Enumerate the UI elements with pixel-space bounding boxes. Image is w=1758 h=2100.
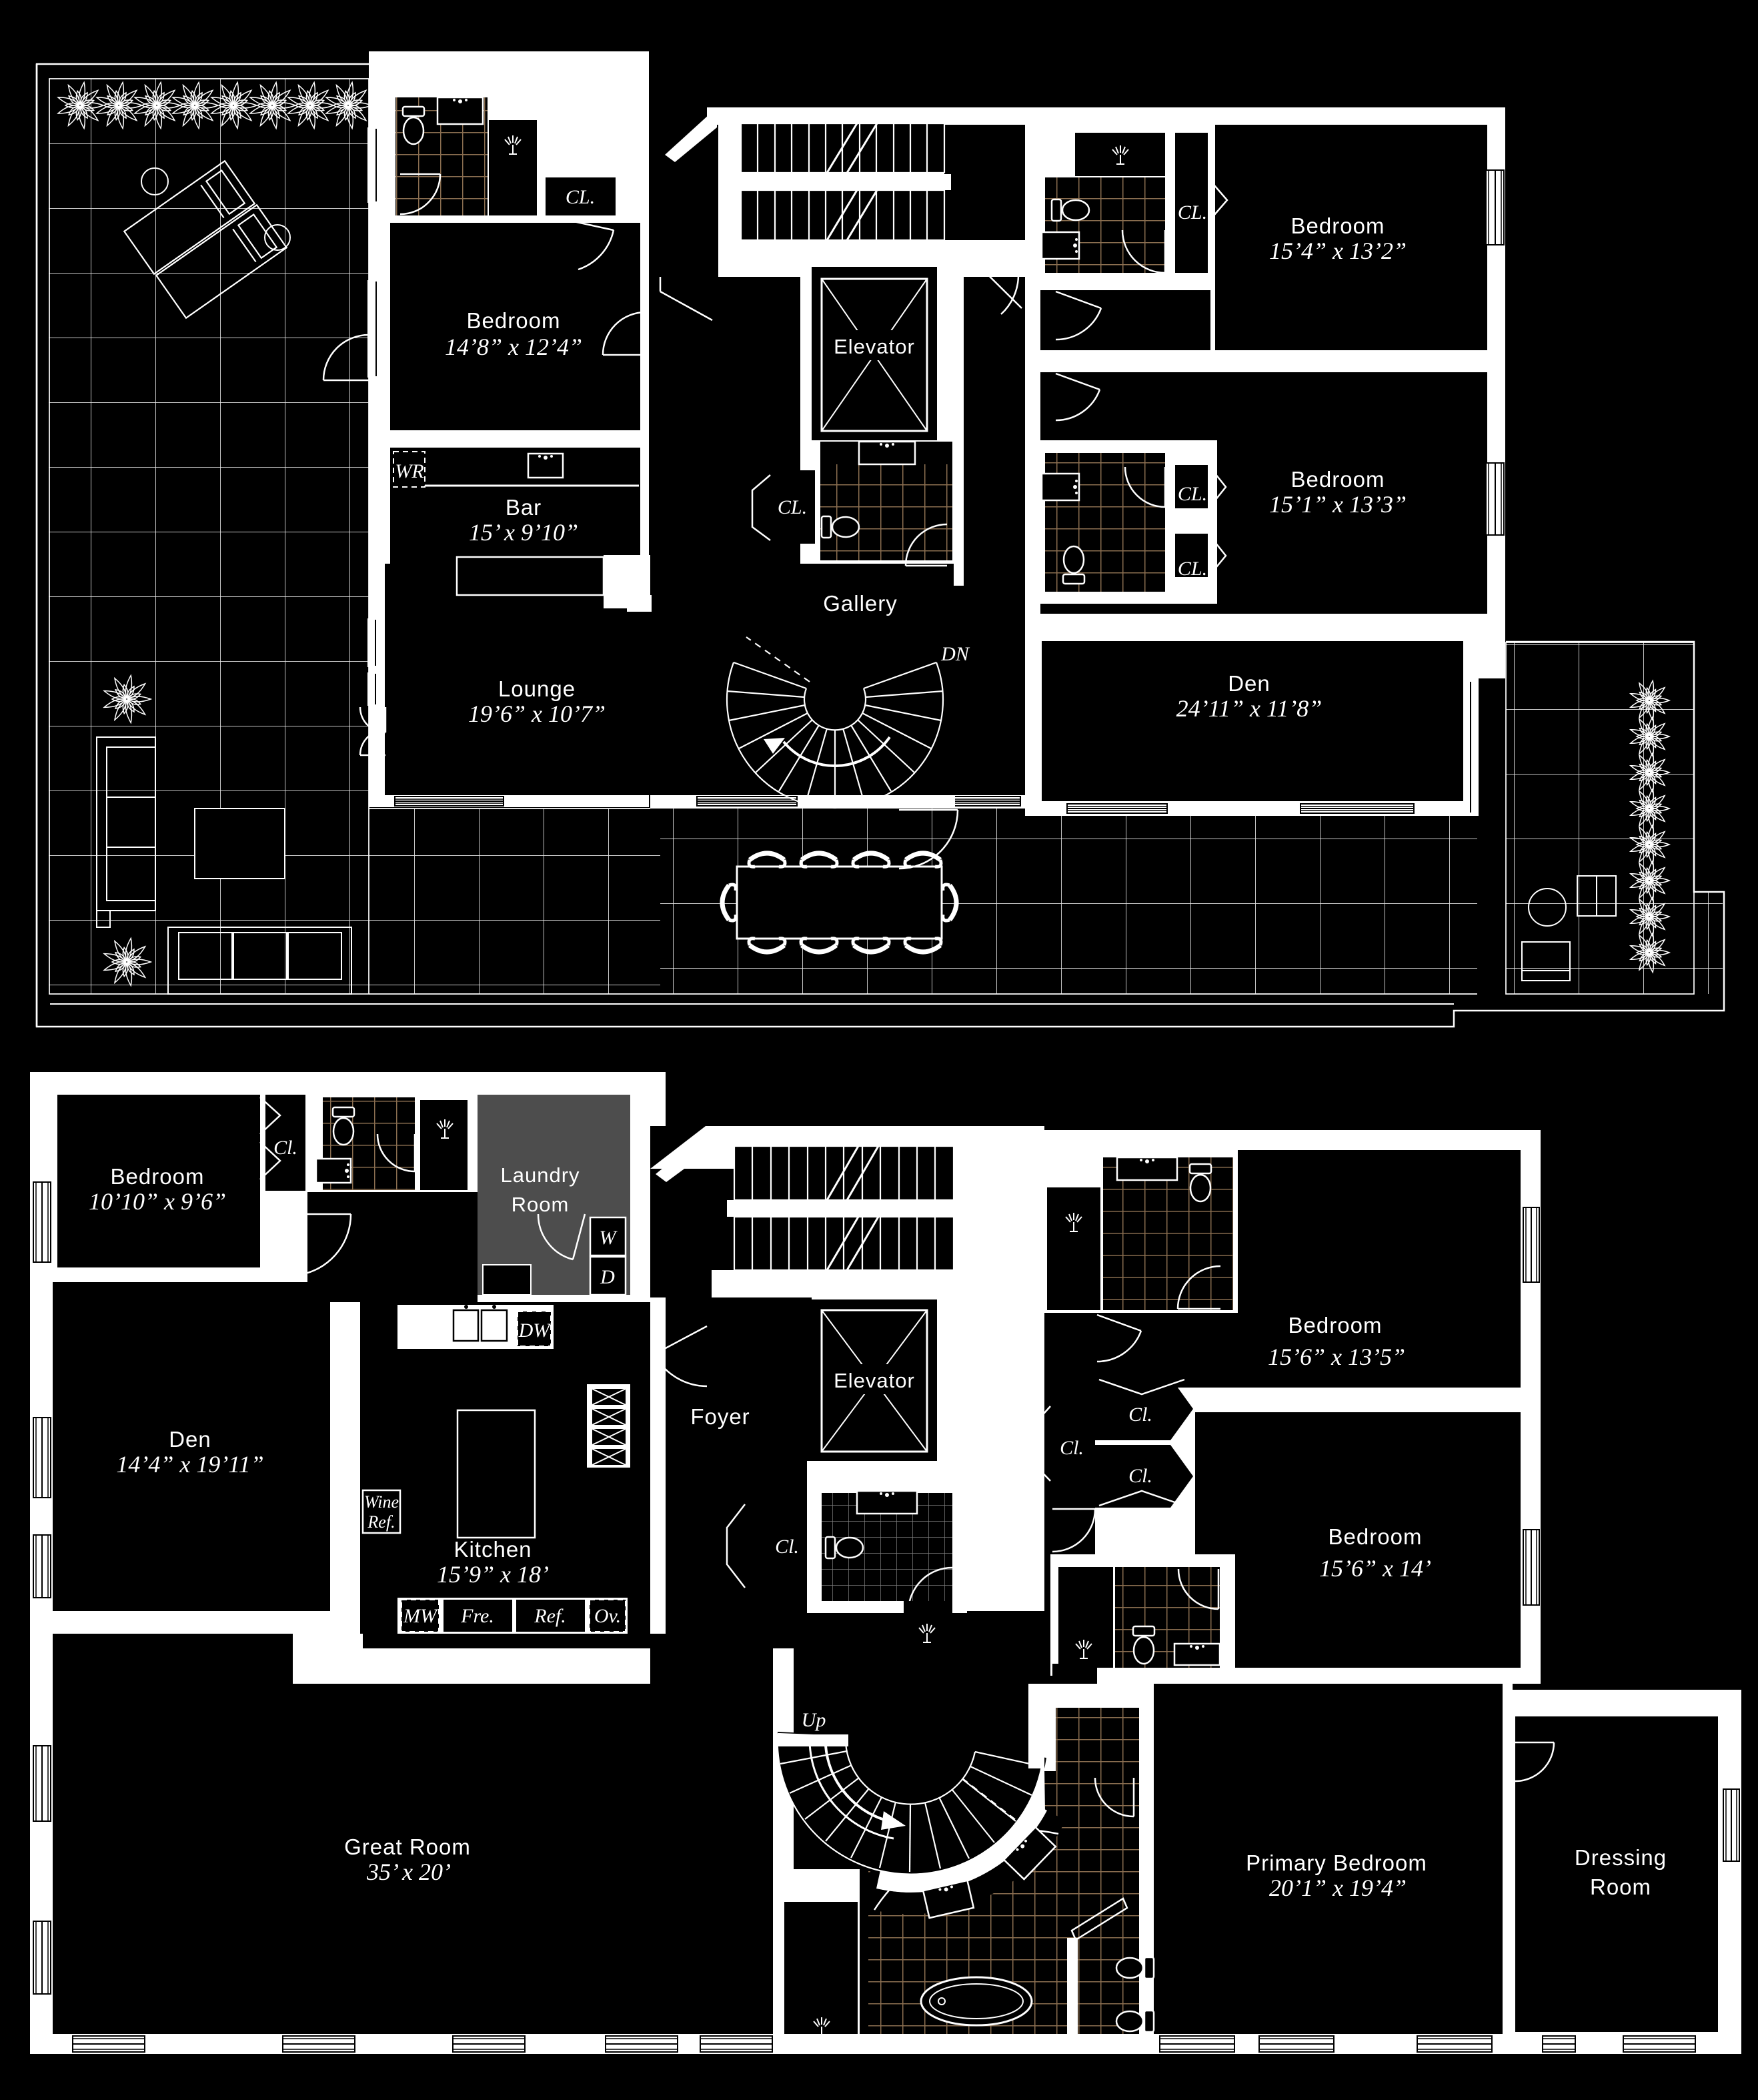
- svg-text:15’6” x 13’5”: 15’6” x 13’5”: [1268, 1344, 1405, 1370]
- svg-text:Ref.: Ref.: [367, 1512, 395, 1532]
- svg-text:Foyer: Foyer: [690, 1404, 750, 1429]
- svg-text:CL.: CL.: [1178, 483, 1207, 505]
- svg-text:Cl.: Cl.: [1128, 1404, 1152, 1426]
- svg-text:20’1” x 19’4”: 20’1” x 19’4”: [1269, 1875, 1407, 1901]
- svg-text:Bedroom: Bedroom: [467, 308, 561, 333]
- svg-text:Cl.: Cl.: [1128, 1465, 1152, 1487]
- svg-text:14’4” x 19’11”: 14’4” x 19’11”: [116, 1451, 263, 1478]
- svg-text:Kitchen: Kitchen: [454, 1537, 532, 1562]
- svg-text:D: D: [600, 1266, 615, 1288]
- svg-text:Wine: Wine: [364, 1492, 399, 1512]
- svg-text:15’9” x 18’: 15’9” x 18’: [437, 1561, 549, 1588]
- svg-text:Cl.: Cl.: [1060, 1437, 1084, 1459]
- svg-text:Up: Up: [802, 1709, 826, 1731]
- svg-text:24’11” x 11’8”: 24’11” x 11’8”: [1176, 695, 1323, 722]
- svg-text:Elevator: Elevator: [834, 335, 915, 358]
- svg-text:Great Room: Great Room: [344, 1834, 471, 1859]
- svg-text:14’8” x 12’4”: 14’8” x 12’4”: [445, 334, 582, 360]
- svg-text:15’6” x 14’: 15’6” x 14’: [1319, 1555, 1431, 1582]
- svg-text:Dressing: Dressing: [1575, 1845, 1667, 1870]
- svg-text:Cl.: Cl.: [273, 1137, 297, 1159]
- svg-text:Den: Den: [1228, 671, 1270, 696]
- svg-text:Bedroom: Bedroom: [111, 1164, 205, 1189]
- svg-text:Ref.: Ref.: [534, 1605, 566, 1627]
- svg-text:15’4” x 13’2”: 15’4” x 13’2”: [1269, 237, 1407, 264]
- svg-text:DW: DW: [518, 1320, 552, 1342]
- svg-text:WR: WR: [395, 460, 423, 482]
- svg-text:35’ x 20’: 35’ x 20’: [366, 1859, 451, 1885]
- svg-text:CL.: CL.: [566, 186, 595, 208]
- svg-text:19’6” x 10’7”: 19’6” x 10’7”: [468, 700, 606, 727]
- svg-text:CL.: CL.: [778, 496, 807, 518]
- svg-text:Primary Bedroom: Primary Bedroom: [1246, 1851, 1427, 1875]
- svg-text:CL.: CL.: [1178, 558, 1207, 580]
- svg-text:Den: Den: [169, 1427, 211, 1452]
- svg-text:Bar: Bar: [506, 495, 542, 520]
- svg-text:DN: DN: [940, 643, 970, 665]
- svg-text:Bedroom: Bedroom: [1329, 1524, 1423, 1549]
- svg-text:Room: Room: [1590, 1875, 1651, 1899]
- svg-text:Bedroom: Bedroom: [1291, 213, 1385, 238]
- svg-text:Ov.: Ov.: [594, 1605, 621, 1627]
- svg-text:Fre.: Fre.: [460, 1605, 494, 1627]
- svg-text:Elevator: Elevator: [834, 1369, 915, 1392]
- svg-text:W: W: [600, 1227, 618, 1249]
- svg-text:Lounge: Lounge: [498, 676, 576, 701]
- svg-text:15’ x 9’10”: 15’ x 9’10”: [469, 519, 578, 546]
- svg-text:10’10” x 9’6”: 10’10” x 9’6”: [89, 1188, 226, 1215]
- svg-text:Laundry: Laundry: [500, 1163, 580, 1187]
- svg-text:Room: Room: [512, 1193, 570, 1216]
- svg-text:Cl.: Cl.: [775, 1536, 799, 1558]
- svg-text:Bedroom: Bedroom: [1288, 1313, 1383, 1338]
- svg-text:CL.: CL.: [1178, 201, 1207, 223]
- svg-text:Gallery: Gallery: [823, 591, 898, 616]
- svg-text:MW: MW: [403, 1605, 439, 1627]
- svg-text:15’1” x 13’3”: 15’1” x 13’3”: [1269, 491, 1407, 518]
- svg-text:Bedroom: Bedroom: [1291, 467, 1385, 492]
